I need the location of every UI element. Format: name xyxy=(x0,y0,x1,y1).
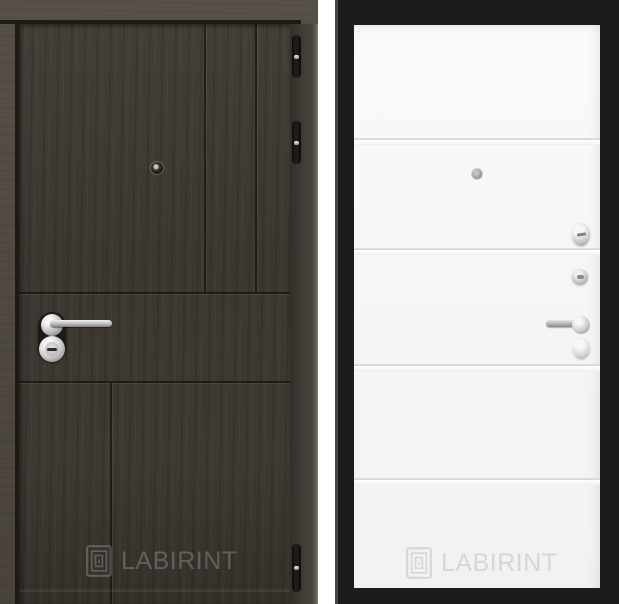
peephole-icon xyxy=(150,161,164,175)
panel-groove xyxy=(354,478,600,486)
door-jamb xyxy=(290,24,318,604)
handle-rose xyxy=(572,316,590,334)
product-photo-stage: LABIRINT xyxy=(0,0,619,604)
key-cylinder xyxy=(39,336,65,362)
door-leaf-white: LABIRINT xyxy=(354,25,600,588)
door-photo-interior: LABIRINT xyxy=(335,0,619,604)
hinge-pin xyxy=(294,141,299,145)
labyrinth-logo-icon xyxy=(406,547,432,579)
panel-groove xyxy=(354,248,600,256)
thumbturn-bar xyxy=(576,232,585,236)
brand-watermark-text: LABIRINT xyxy=(441,551,558,576)
panel-groove xyxy=(204,24,206,292)
panel-groove xyxy=(19,589,290,591)
thumbturn-knob xyxy=(572,223,590,246)
hinge-pin xyxy=(294,55,299,59)
brand-watermark-text: LABIRINT xyxy=(121,549,238,574)
panel-groove xyxy=(354,364,600,372)
brand-watermark: LABIRINT xyxy=(406,547,558,579)
hinge-icon xyxy=(292,35,301,78)
panel-groove xyxy=(19,381,290,383)
panel-groove xyxy=(354,138,600,146)
panel-groove xyxy=(255,24,257,292)
hinge-pin xyxy=(294,566,299,570)
hinge-icon xyxy=(292,544,301,592)
hinge-icon xyxy=(292,121,301,164)
keyhole-icon xyxy=(577,275,584,279)
panel-groove xyxy=(19,292,290,294)
door-photo-exterior: LABIRINT xyxy=(0,0,318,604)
frame-edge-highlight xyxy=(335,0,338,604)
peephole-icon xyxy=(471,168,483,180)
brand-watermark: LABIRINT xyxy=(86,545,238,577)
lever-handle xyxy=(50,320,112,327)
keyhole-icon xyxy=(47,348,57,351)
escutcheon xyxy=(573,338,590,359)
key-cylinder xyxy=(572,269,588,285)
labyrinth-logo-icon xyxy=(86,545,112,577)
